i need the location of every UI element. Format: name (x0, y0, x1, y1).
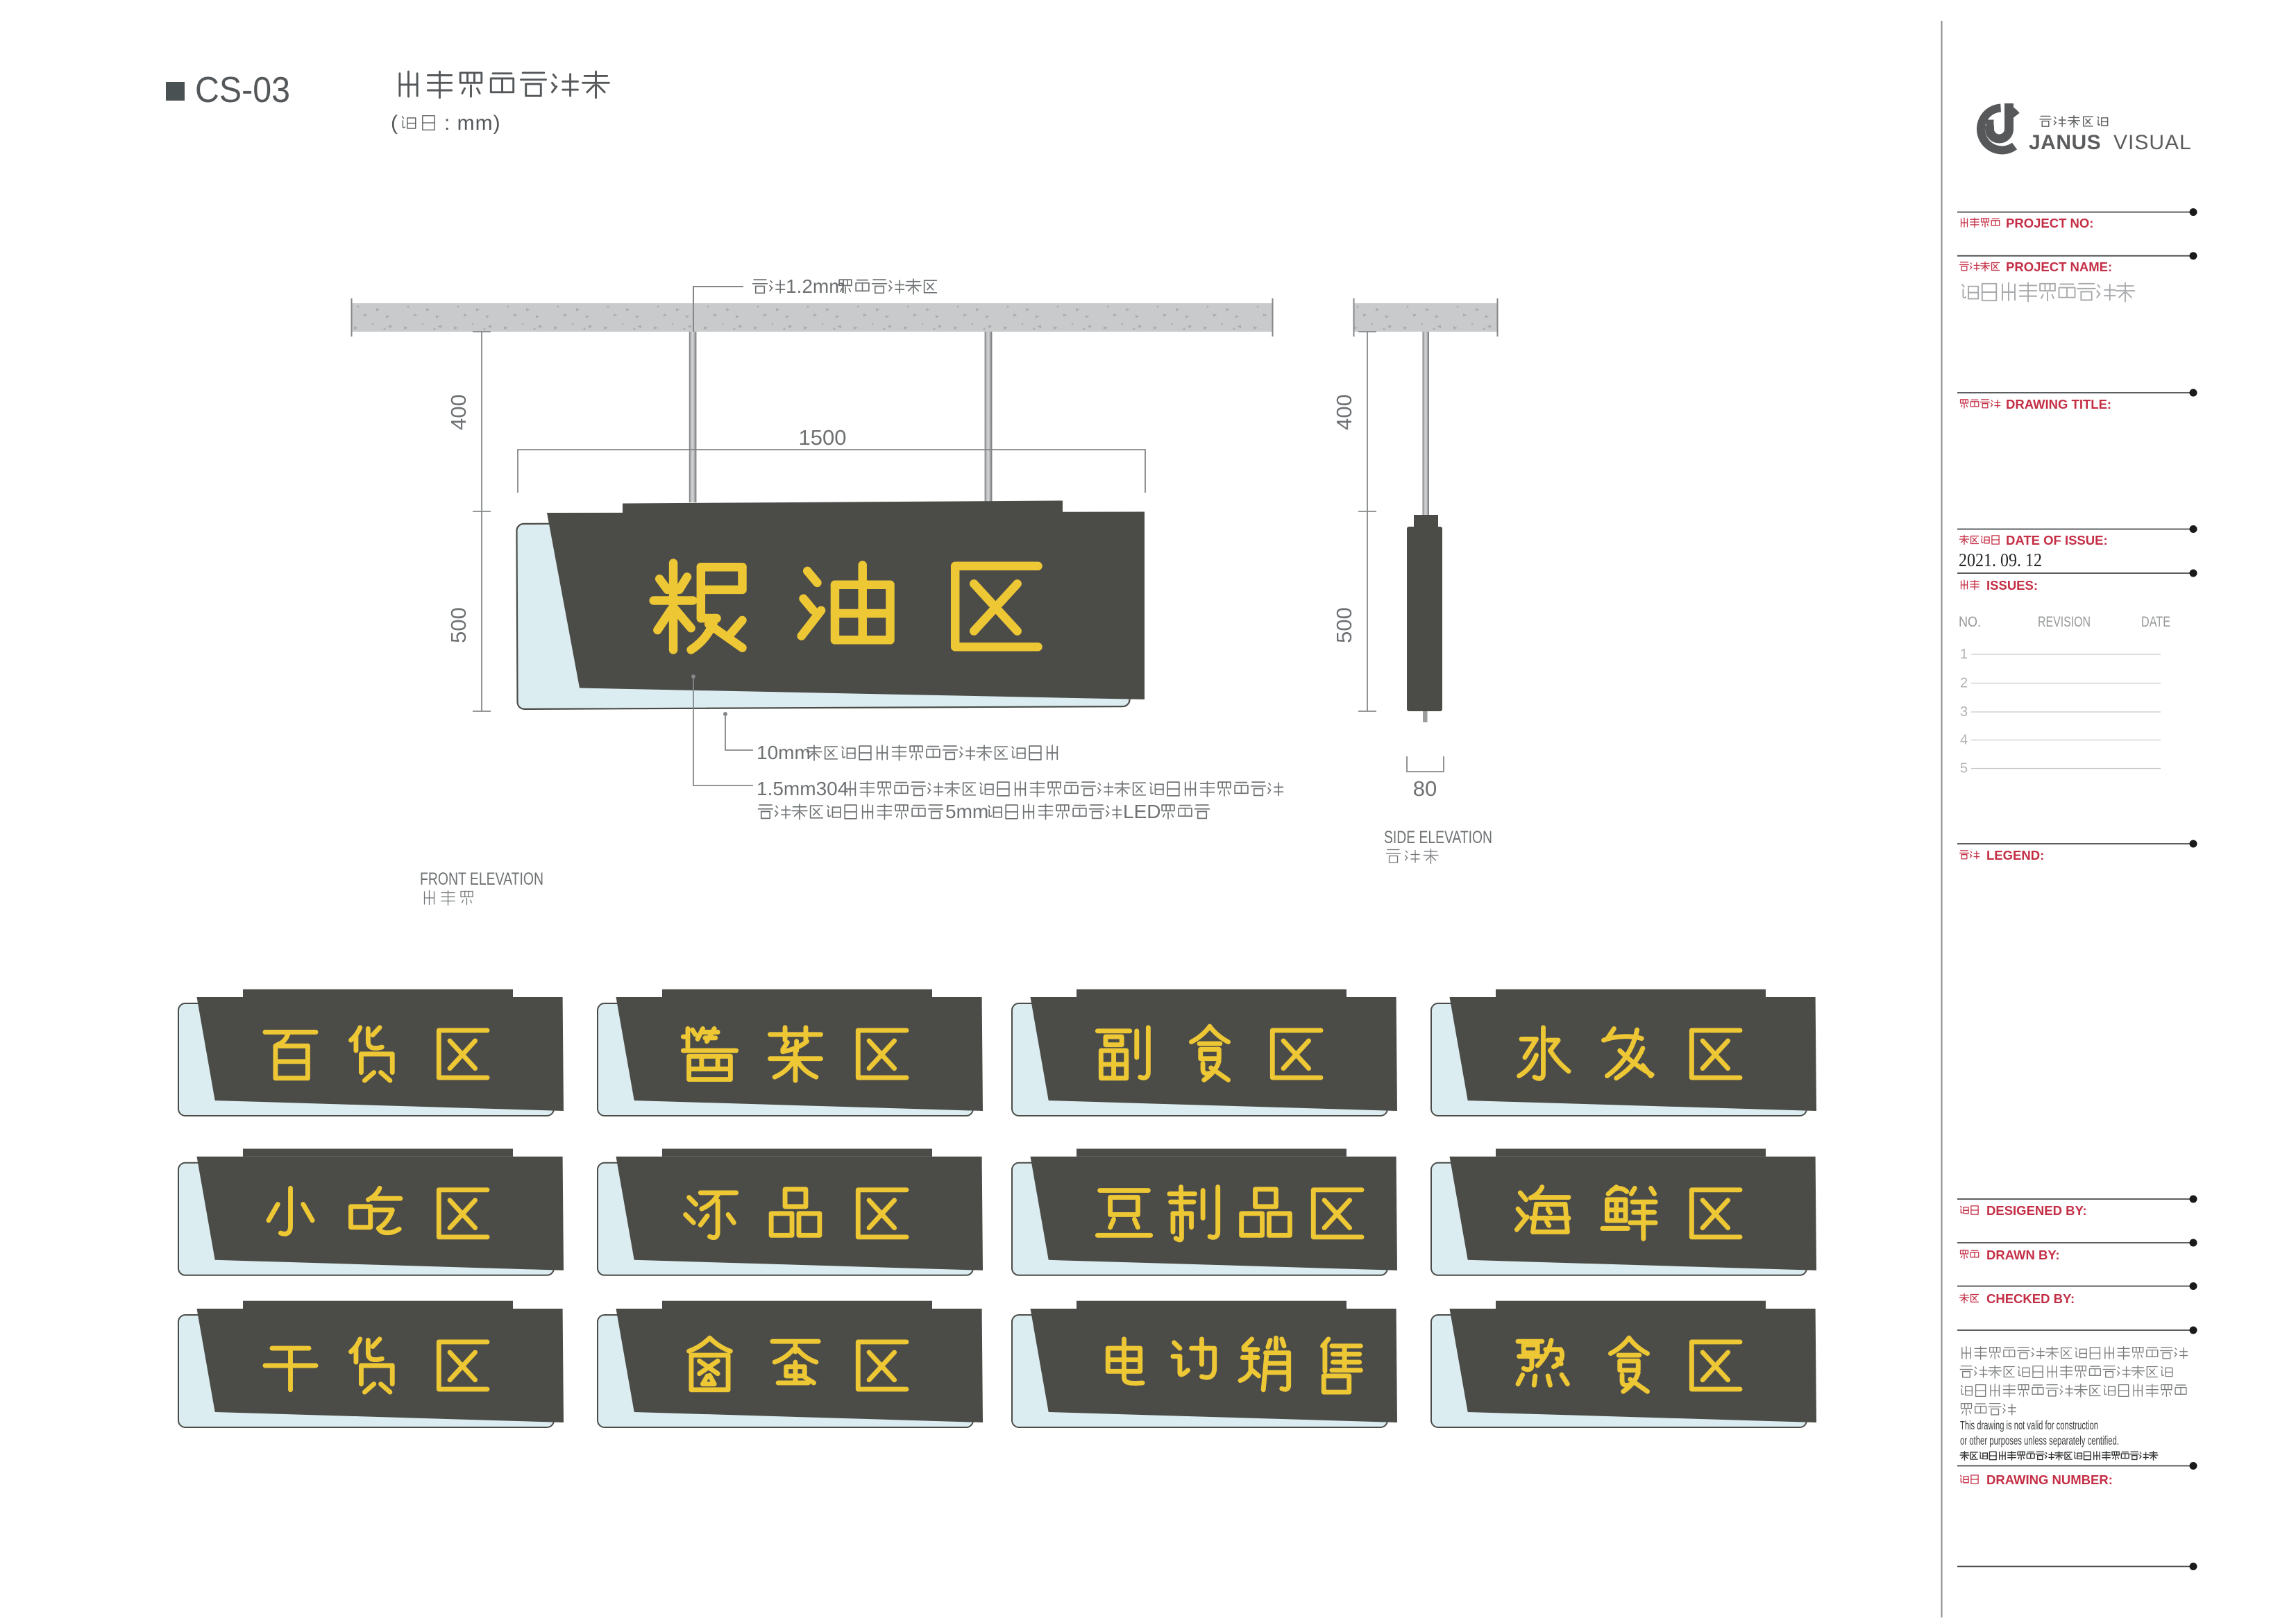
svg-text:PROJECT NO:: PROJECT NO: (2006, 216, 2093, 230)
svg-text:400: 400 (446, 394, 471, 430)
svg-text:CS-03: CS-03 (195, 70, 290, 110)
svg-text:DATE OF ISSUE:: DATE OF ISSUE: (2006, 533, 2108, 547)
svg-text:JANUS: JANUS (2029, 131, 2101, 154)
svg-text:LED: LED (1123, 801, 1160, 822)
svg-text:SIDE ELEVATION: SIDE ELEVATION (1384, 828, 1492, 847)
svg-text:NO.: NO. (1959, 614, 1981, 630)
svg-text:REVISION: REVISION (2038, 614, 2091, 630)
svg-text:This drawing is not valid for: This drawing is not valid for constructi… (1960, 1418, 2098, 1432)
svg-text:80: 80 (1413, 776, 1437, 801)
svg-text:or other purposes unless separ: or other purposes unless separately cent… (1960, 1434, 2119, 1447)
svg-text:DRAWN BY:: DRAWN BY: (1986, 1248, 2060, 1262)
svg-text:10mm: 10mm (757, 742, 811, 763)
svg-text:: mm): : mm) (444, 112, 501, 135)
svg-text:1500: 1500 (799, 425, 847, 450)
svg-text:4: 4 (1960, 733, 1968, 748)
svg-text:CHECKED BY:: CHECKED BY: (1986, 1291, 2075, 1306)
svg-text:DRAWING TITLE:: DRAWING TITLE: (2006, 397, 2111, 411)
svg-text:ISSUES:: ISSUES: (1986, 578, 2038, 593)
svg-text:400: 400 (1332, 394, 1356, 430)
svg-text:VISUAL: VISUAL (2113, 131, 2192, 154)
svg-text:5: 5 (1960, 761, 1968, 776)
svg-text:FRONT ELEVATION: FRONT ELEVATION (420, 869, 543, 889)
svg-text:5mm: 5mm (945, 801, 988, 822)
svg-text:DATE: DATE (2141, 614, 2170, 630)
svg-text:500: 500 (446, 607, 471, 643)
svg-text:(: ( (391, 112, 398, 135)
svg-text:DRAWING NUMBER:: DRAWING NUMBER: (1986, 1472, 2113, 1487)
svg-text:3: 3 (1960, 704, 1968, 720)
svg-text:2: 2 (1960, 676, 1968, 691)
svg-text:PROJECT NAME:: PROJECT NAME: (2006, 260, 2112, 274)
svg-text:2021. 09. 12: 2021. 09. 12 (1959, 550, 2042, 570)
svg-text:1.5mm304: 1.5mm304 (757, 778, 848, 799)
svg-text:LEGEND:: LEGEND: (1986, 848, 2044, 863)
svg-text:1: 1 (1960, 647, 1968, 662)
svg-text:500: 500 (1332, 607, 1356, 643)
svg-text:1.2mm: 1.2mm (786, 275, 845, 297)
svg-text:DESIGENED BY:: DESIGENED BY: (1986, 1203, 2087, 1218)
